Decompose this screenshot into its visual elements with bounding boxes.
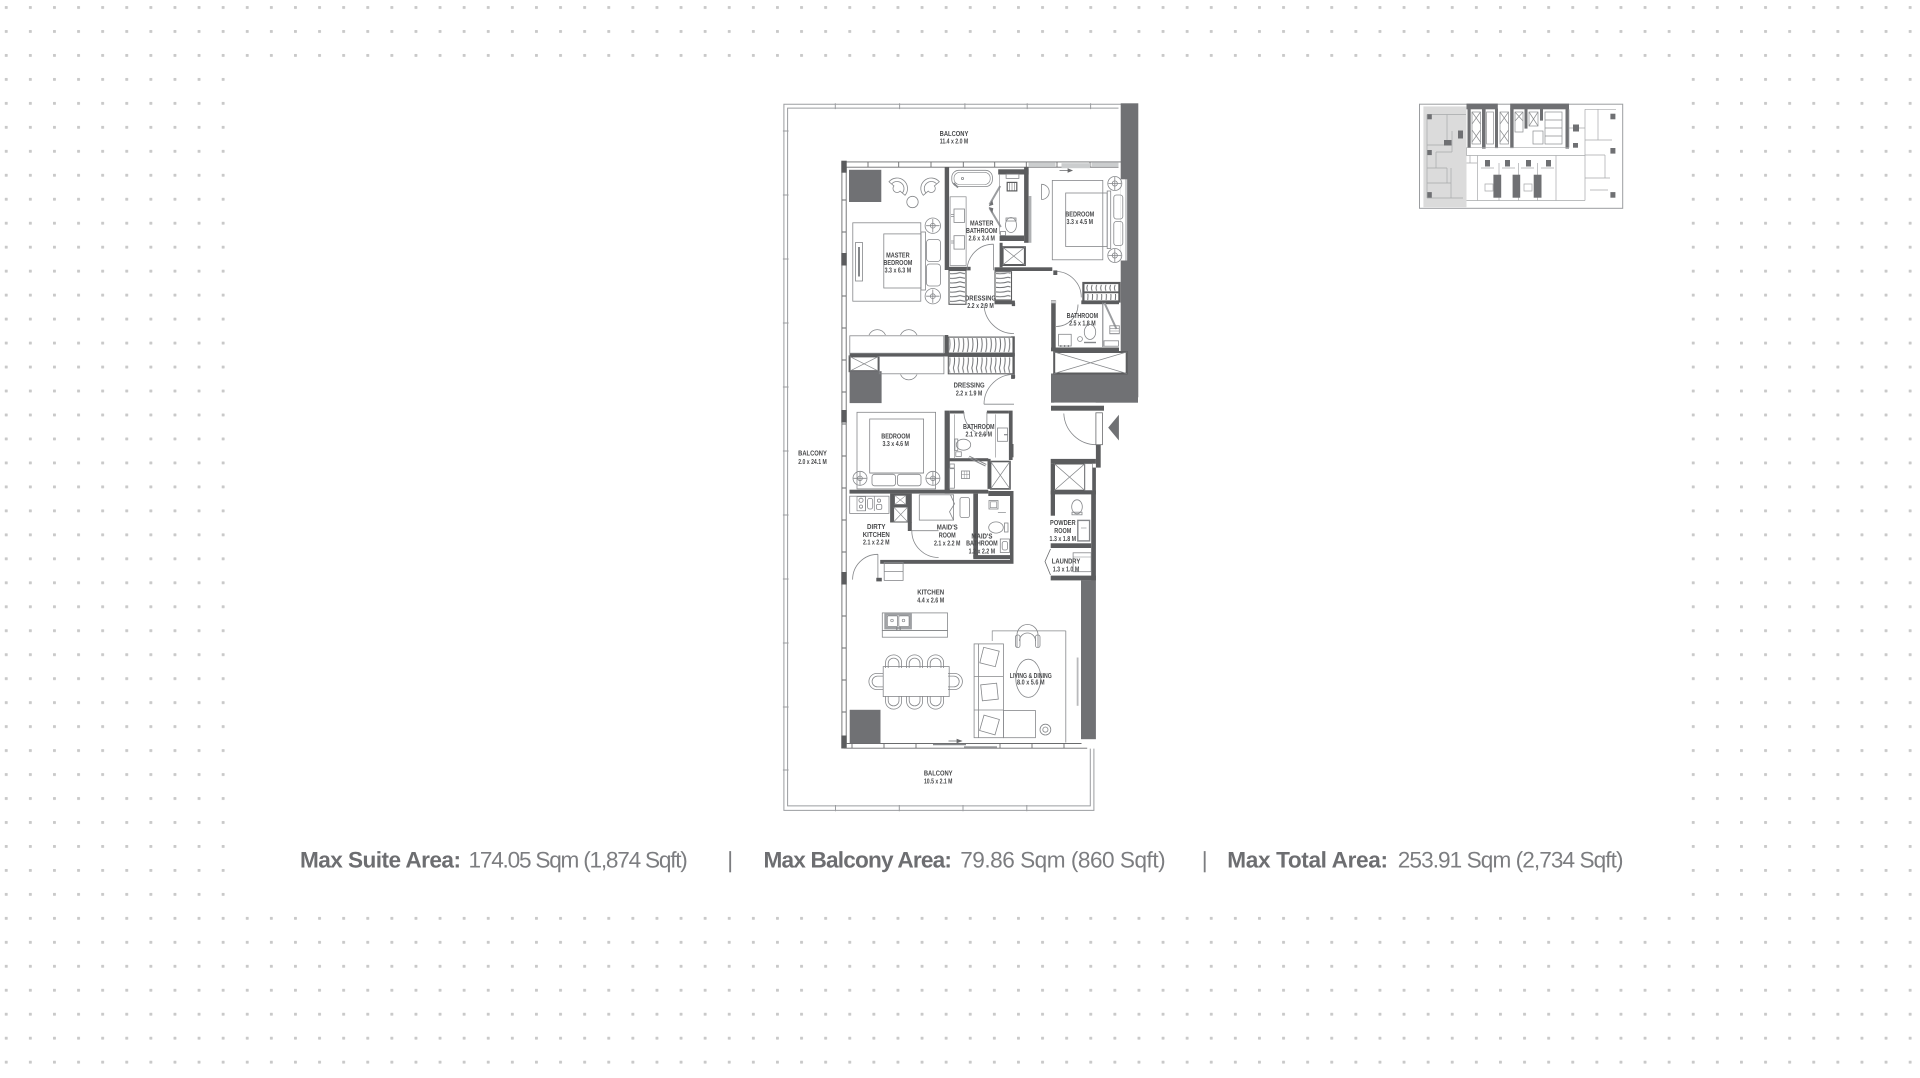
svg-text:2.0 x 24.1 M: 2.0 x 24.1 M [798, 457, 827, 466]
svg-text:Max Total Area:: Max Total Area: [1227, 848, 1387, 873]
svg-text:8.0 x 5.6 M: 8.0 x 5.6 M [1017, 678, 1045, 687]
svg-text:|: | [1202, 848, 1208, 873]
svg-text:253.91 Sqm (2,734 Sqft): 253.91 Sqm (2,734 Sqft) [1398, 848, 1623, 873]
svg-text:Max Balcony Area:: Max Balcony Area: [764, 848, 952, 873]
svg-text:3.3 x 4.5 M: 3.3 x 4.5 M [1067, 217, 1094, 226]
svg-text:Max Suite Area:: Max Suite Area: [300, 848, 460, 873]
svg-text:2.1 x 2.6 M: 2.1 x 2.6 M [966, 430, 993, 439]
svg-text:10.5 x 2.1 M: 10.5 x 2.1 M [924, 777, 953, 786]
svg-text:174.05 Sqm (1,874 Sqft): 174.05 Sqm (1,874 Sqft) [469, 848, 688, 873]
svg-text:4.4 x 2.6 M: 4.4 x 2.6 M [917, 595, 944, 604]
svg-text:2.2 x 1.9 M: 2.2 x 1.9 M [956, 389, 983, 398]
svg-text:2.5 x 1.8 M: 2.5 x 1.8 M [1069, 318, 1096, 327]
svg-text:11.4 x 2.0 M: 11.4 x 2.0 M [940, 137, 969, 146]
svg-text:2.1 x 2.2 M: 2.1 x 2.2 M [934, 539, 961, 548]
svg-text:1.3 x 1.8 M: 1.3 x 1.8 M [1050, 534, 1077, 543]
svg-text:79.86 Sqm (860 Sqft): 79.86 Sqm (860 Sqft) [960, 848, 1165, 873]
svg-text:1.3 x 1.0 M: 1.3 x 1.0 M [1053, 565, 1080, 574]
svg-text:2.1 x 2.2 M: 2.1 x 2.2 M [863, 538, 890, 547]
svg-text:3.3 x 4.6 M: 3.3 x 4.6 M [882, 439, 909, 448]
svg-text:1.2 x 2.2 M: 1.2 x 2.2 M [969, 546, 996, 555]
svg-text:2.6 x 3.4 M: 2.6 x 3.4 M [968, 234, 995, 243]
svg-text:|: | [727, 848, 733, 873]
svg-text:3.3 x 6.3 M: 3.3 x 6.3 M [885, 266, 912, 275]
svg-text:2.2 x 2.9 M: 2.2 x 2.9 M [967, 301, 994, 310]
